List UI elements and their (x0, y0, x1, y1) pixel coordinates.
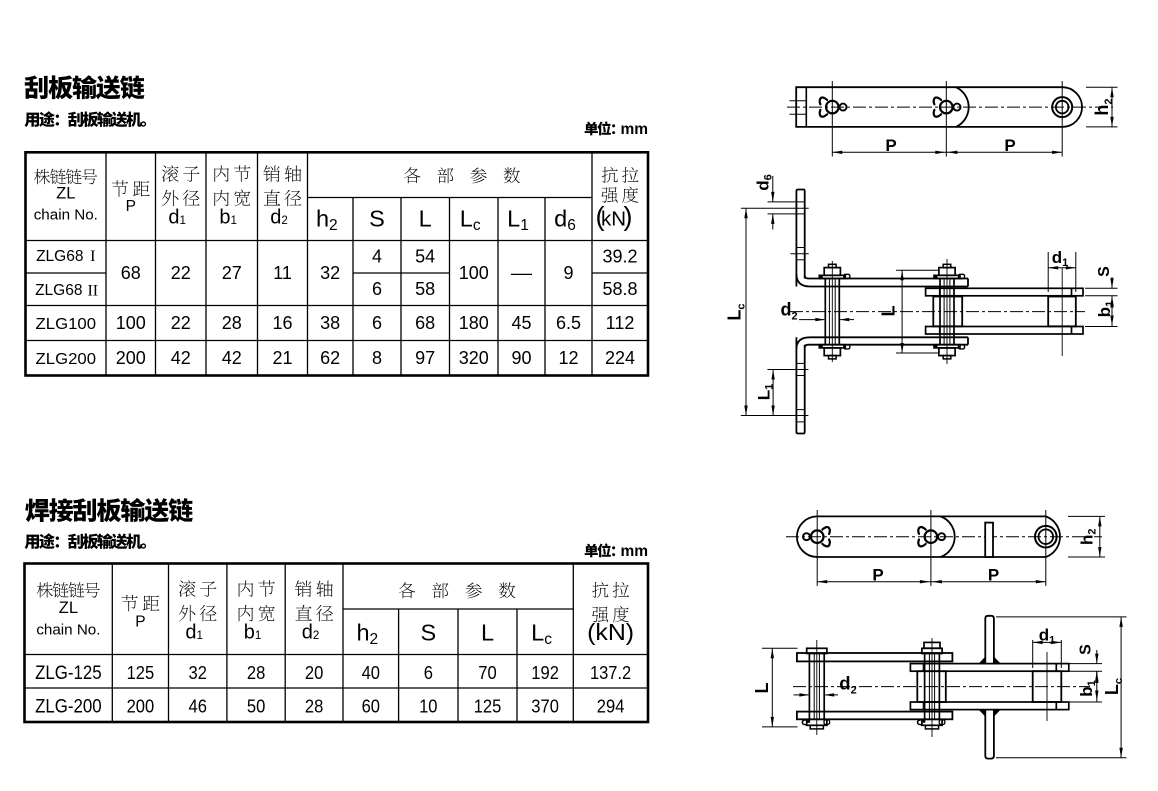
svg-text:10: 10 (419, 697, 437, 717)
svg-text:224: 224 (605, 348, 635, 368)
svg-text:27: 27 (222, 263, 242, 283)
svg-text:45: 45 (511, 313, 531, 333)
svg-text:P: P (1004, 136, 1015, 155)
svg-text:62: 62 (320, 348, 340, 368)
svg-text:ZLG-200: ZLG-200 (35, 697, 102, 718)
svg-text:d2: d2 (302, 622, 320, 644)
svg-text:L: L (752, 683, 772, 694)
svg-text:d2: d2 (270, 207, 288, 229)
svg-text:28: 28 (222, 313, 242, 333)
svg-text:6: 6 (372, 279, 382, 299)
svg-text:d6: d6 (754, 174, 775, 191)
svg-text:68: 68 (415, 313, 435, 333)
svg-text:L1: L1 (507, 206, 529, 234)
svg-text:—: — (511, 263, 532, 283)
svg-text:S: S (369, 206, 385, 232)
svg-text:6: 6 (424, 663, 433, 683)
svg-text:22: 22 (171, 263, 191, 283)
svg-text:90: 90 (511, 348, 531, 368)
svg-text:d1: d1 (1039, 626, 1056, 647)
svg-text:180: 180 (459, 313, 489, 333)
svg-text:d6: d6 (554, 206, 576, 234)
svg-text:112: 112 (606, 313, 635, 333)
svg-text:125: 125 (127, 663, 155, 683)
svg-text:Lc: Lc (1102, 678, 1125, 695)
svg-text:S: S (1078, 644, 1095, 655)
svg-text:mm: mm (621, 121, 649, 138)
svg-text:40: 40 (362, 663, 380, 683)
svg-text:b1: b1 (1095, 301, 1116, 318)
svg-text:22: 22 (171, 313, 191, 333)
svg-text:P: P (872, 566, 883, 585)
svg-text:192: 192 (531, 663, 559, 683)
svg-text:320: 320 (459, 348, 489, 368)
svg-text:II: II (87, 282, 98, 299)
svg-text:100: 100 (459, 263, 489, 283)
svg-text:28: 28 (247, 663, 265, 683)
svg-text:46: 46 (189, 697, 207, 717)
svg-text:294: 294 (597, 697, 625, 717)
svg-text:4: 4 (372, 247, 382, 267)
svg-text:mm: mm (621, 543, 649, 560)
svg-text:L: L (419, 206, 432, 232)
svg-text:): ) (624, 201, 633, 231)
svg-text:P: P (988, 566, 999, 585)
svg-text:h2: h2 (356, 620, 378, 648)
svg-text:S: S (420, 620, 436, 646)
svg-text:70: 70 (478, 663, 496, 683)
svg-text:L: L (481, 620, 494, 646)
svg-text:ZLG100: ZLG100 (36, 316, 97, 333)
svg-text:P: P (135, 614, 145, 631)
svg-text:d1: d1 (185, 622, 203, 644)
svg-text:137.2: 137.2 (590, 663, 631, 683)
svg-text:39.2: 39.2 (602, 247, 637, 267)
svg-text:ZLG68: ZLG68 (36, 248, 83, 265)
svg-text:8: 8 (372, 348, 382, 368)
svg-text:L1: L1 (755, 384, 776, 401)
svg-text:11: 11 (273, 263, 292, 283)
svg-text:125: 125 (474, 697, 502, 717)
svg-text:d1: d1 (168, 207, 186, 229)
svg-text:6.5: 6.5 (556, 313, 581, 333)
svg-text:d1: d1 (1052, 248, 1069, 269)
svg-text:Lc: Lc (460, 206, 481, 234)
svg-text:ZL: ZL (56, 184, 75, 202)
svg-text:42: 42 (171, 348, 191, 368)
svg-text:b1: b1 (244, 622, 262, 644)
svg-text:chain No.: chain No. (34, 207, 98, 224)
svg-text:d2: d2 (839, 673, 856, 697)
svg-text:S: S (1096, 266, 1113, 277)
svg-text:200: 200 (116, 348, 146, 368)
svg-text:b1: b1 (219, 207, 237, 229)
svg-text:L: L (879, 306, 899, 317)
svg-text:h2: h2 (316, 206, 338, 234)
svg-text:16: 16 (272, 313, 292, 333)
svg-text:P: P (885, 136, 896, 155)
svg-text:20: 20 (305, 663, 323, 683)
svg-text:Lc: Lc (531, 620, 552, 648)
svg-text:68: 68 (121, 263, 141, 283)
svg-text:32: 32 (189, 663, 207, 683)
svg-text:P: P (126, 198, 136, 215)
svg-text:200: 200 (127, 697, 155, 717)
svg-text:ZLG68: ZLG68 (35, 282, 82, 299)
svg-text:I: I (90, 248, 95, 265)
svg-text:(kN): (kN) (587, 619, 634, 645)
svg-text:h2: h2 (1078, 528, 1099, 545)
svg-text:54: 54 (415, 247, 435, 267)
svg-text:42: 42 (222, 348, 242, 368)
svg-text:ZLG200: ZLG200 (36, 351, 97, 368)
svg-text:58: 58 (415, 279, 435, 299)
svg-text:28: 28 (305, 697, 323, 717)
svg-text:100: 100 (116, 313, 146, 333)
svg-text:h2: h2 (1092, 99, 1115, 116)
svg-text:58.8: 58.8 (602, 279, 637, 299)
svg-text:21: 21 (272, 348, 292, 368)
svg-text:kN: kN (601, 207, 626, 230)
svg-text:370: 370 (531, 697, 559, 717)
svg-text:9: 9 (563, 263, 573, 283)
svg-text:Lc: Lc (725, 303, 748, 320)
svg-text:60: 60 (362, 697, 380, 717)
svg-text:97: 97 (415, 348, 435, 368)
svg-text:32: 32 (320, 263, 340, 283)
svg-text:b1: b1 (1077, 680, 1098, 697)
svg-text:12: 12 (558, 348, 578, 368)
svg-text:ZLG-125: ZLG-125 (35, 663, 102, 684)
svg-text:38: 38 (320, 313, 340, 333)
svg-text:chain No.: chain No. (36, 622, 100, 639)
svg-text:ZL: ZL (59, 599, 78, 617)
svg-text:50: 50 (247, 697, 265, 717)
svg-text:6: 6 (372, 313, 382, 333)
svg-text:d2: d2 (780, 300, 797, 323)
